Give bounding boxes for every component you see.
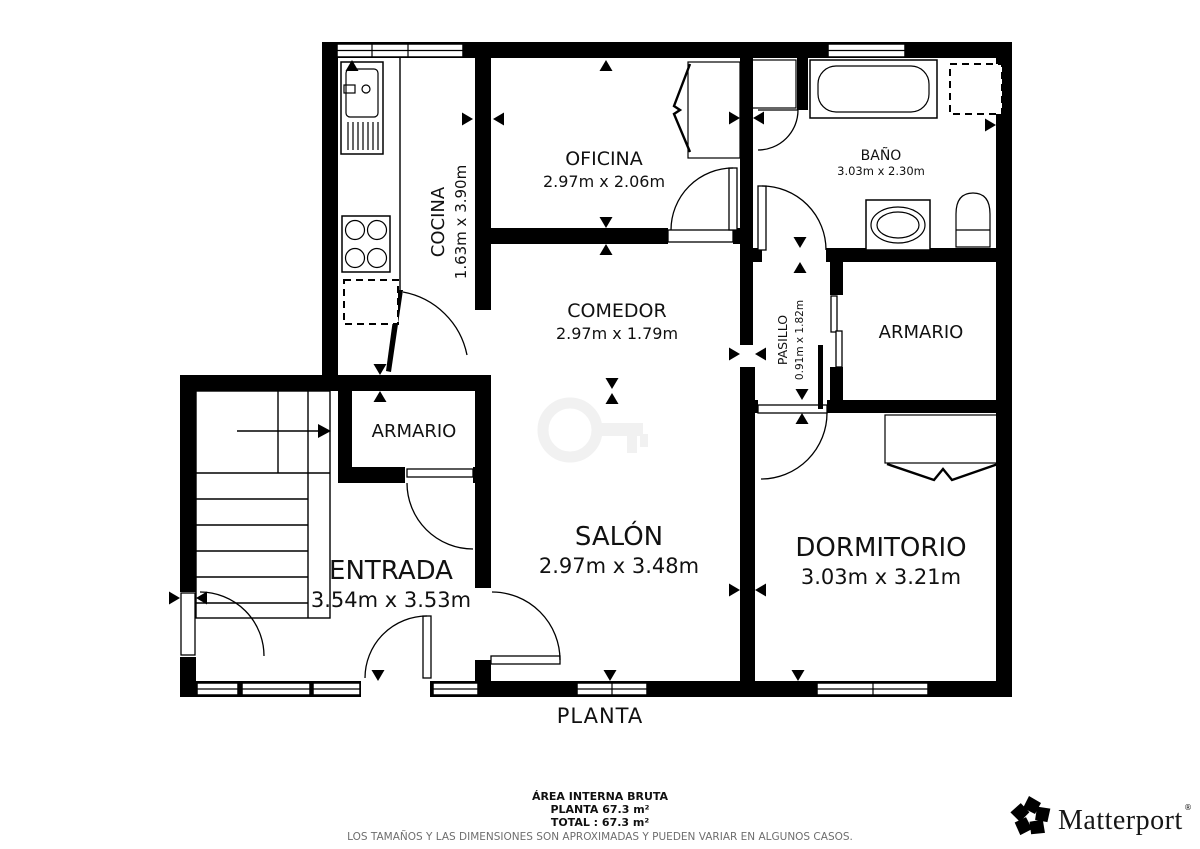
kitchen-sink-icon (341, 62, 383, 154)
total-area: TOTAL : 67.3 m² (551, 816, 650, 829)
cocina-label: COCINA (428, 186, 449, 257)
cocina-dims: 1.63m x 3.90m (452, 165, 470, 279)
sink-icon (866, 200, 930, 250)
floorplan-page: COCINA 1.63m x 3.90m OFICINA 2.97m x 2.0… (0, 0, 1200, 849)
key-watermark-icon (543, 403, 648, 457)
walls (180, 42, 1012, 697)
oficina-label: OFICINA (565, 148, 643, 170)
entrada-label: ENTRADA (329, 556, 453, 586)
toilet-icon (956, 193, 990, 247)
oficina-dims: 2.97m x 2.06m (543, 172, 665, 191)
pasillo-label: PASILLO (775, 315, 790, 365)
entrada-dims: 3.54m x 3.53m (311, 588, 471, 612)
salon-dims: 2.97m x 3.48m (539, 554, 699, 578)
planta-area: PLANTA 67.3 m² (550, 803, 649, 816)
salon-label: SALÓN (575, 520, 663, 552)
comedor-dims: 2.97m x 1.79m (556, 324, 678, 343)
dormitorio-door (758, 405, 827, 479)
brand-name: Matterport (1058, 805, 1183, 836)
salon-door (491, 592, 560, 664)
dormitorio-dims: 3.03m x 3.21m (801, 565, 961, 589)
disclaimer: LOS TAMAÑOS Y LAS DIMENSIONES SON APROXI… (347, 830, 853, 843)
dormitorio-wardrobe-icon (885, 415, 1000, 480)
entrada-side-door (181, 592, 264, 656)
kitchen-dashed-icon (344, 280, 398, 324)
footer: ÁREA INTERNA BRUTA PLANTA 67.3 m² TOTAL … (347, 790, 853, 843)
dormitorio-label: DORMITORIO (795, 533, 966, 563)
appliance-dashed-icon (950, 64, 1002, 114)
brand: Matterport ® (1009, 796, 1192, 840)
bano-label: BAÑO (861, 147, 902, 164)
staircase (196, 391, 331, 618)
entrada-main-door (365, 616, 431, 678)
bath-closet-icon (750, 60, 796, 108)
armario-der-label: ARMARIO (879, 322, 964, 343)
bathtub-icon (810, 60, 937, 118)
stove-icon (342, 216, 390, 272)
pasillo-dims: 0.91m x 1.82m (794, 300, 806, 380)
floor-title: PLANTA (557, 704, 643, 728)
matterport-logo-icon (1009, 796, 1055, 840)
kitchen-fixtures (341, 58, 400, 324)
bano-dims: 3.03m x 2.30m (837, 164, 925, 178)
floorplan-drawing: COCINA 1.63m x 3.90m OFICINA 2.97m x 2.0… (0, 0, 1200, 849)
oficina-door (668, 168, 737, 242)
registered-mark: ® (1184, 803, 1192, 812)
bano-door (758, 186, 826, 250)
comedor-label: COMEDOR (567, 300, 666, 322)
area-heading: ÁREA INTERNA BRUTA (532, 790, 669, 803)
armario-izq-label: ARMARIO (372, 421, 457, 442)
oficina-wardrobe-icon (674, 62, 740, 158)
